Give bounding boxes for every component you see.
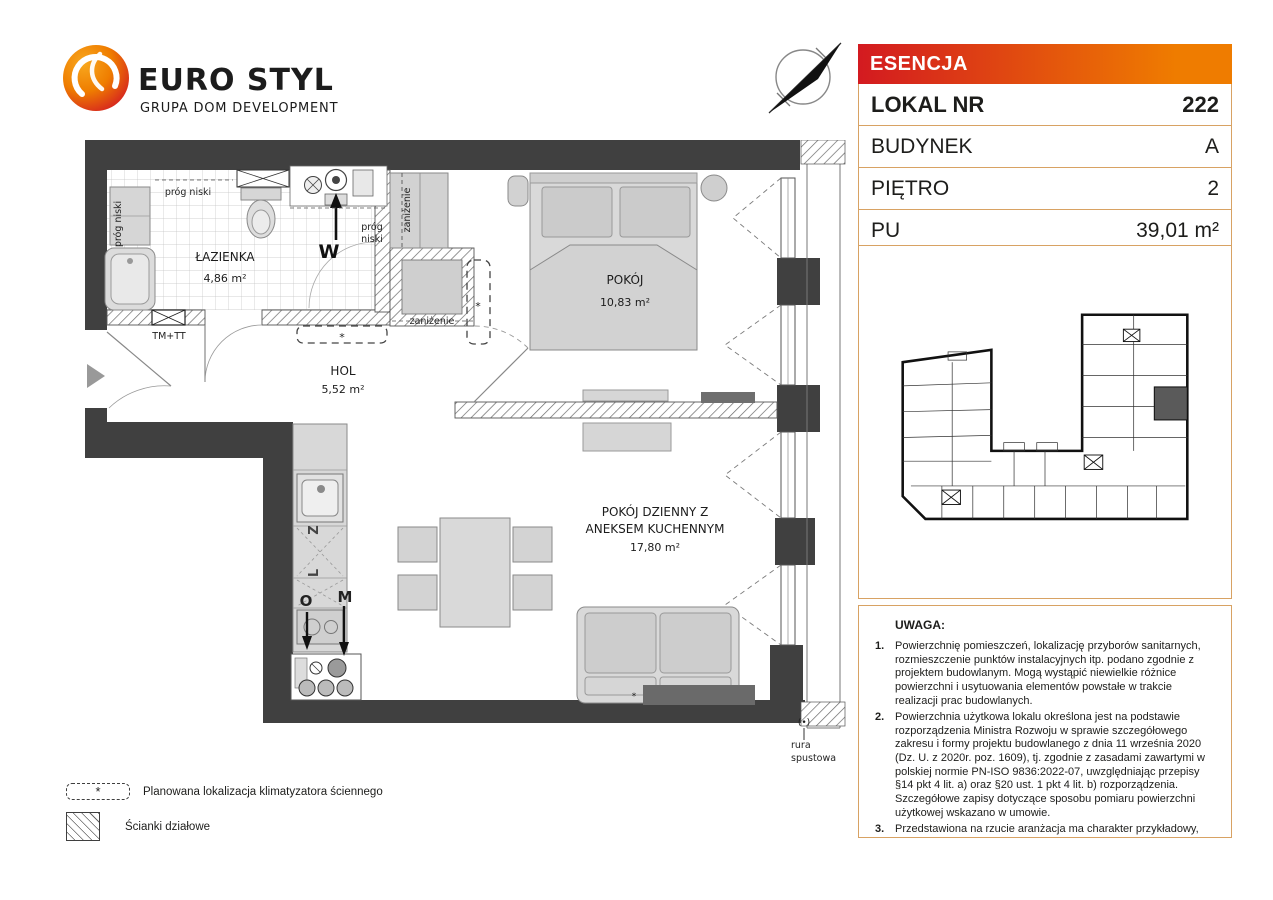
label-rura-2: spustowa [791,753,836,764]
label-oven: O [300,592,313,610]
info-label: PU [871,219,900,243]
legend: * Planowana lokalizacja klimatyzatora śc… [66,783,586,850]
label-niski: niski [361,234,383,245]
info-label: BUDYNEK [871,135,973,159]
room-label-hol: HOL [330,364,355,378]
brand-subtitle: GRUPA DOM DEVELOPMENT [140,101,338,116]
label-prog-niski-top: próg niski [165,187,211,198]
building-key-plan-cell [858,245,1232,599]
floor-plan: ŁAZIENKA 4,86 m² HOL 5,52 m² POKÓJ 10,83… [85,140,847,772]
note-item: 2. Powierzchnia użytkowa lokalu określon… [875,711,1217,820]
wall-vent-box [237,170,289,187]
bedroom-tv [701,392,755,403]
info-label: PIĘTRO [871,177,949,201]
room-label-living-2: ANEKSEM KUCHENNYM [586,522,725,536]
info-row-lokal: LOKAL NR 222 [858,84,1232,126]
tv-asterisk: * [632,692,637,702]
notes-panel: UWAGA: 1. Powierzchnię pomieszczeń, loka… [858,605,1232,838]
legend-label-ac: Planowana lokalizacja klimatyzatora ście… [143,786,383,798]
building-key-plan [880,297,1210,547]
info-value: 222 [1182,92,1219,118]
legend-label-partition: Ścianki działowe [125,821,210,833]
project-name-header: ESENCJA [858,44,1232,84]
dining-table [398,518,552,627]
info-row-budynek: BUDYNEK A [858,126,1232,168]
note-item: 3. Przedstawiona na rzucie aranżacja ma … [875,823,1217,838]
room-label-pokoj: POKÓJ [607,272,644,287]
label-fridge: L [307,569,322,577]
bed [508,173,727,350]
balcony-strip [801,140,845,728]
highlighted-unit [1154,387,1187,420]
note-item: 1. Powierzchnię pomieszczeń, lokalizację… [875,640,1217,708]
room-label-lazienka: ŁAZIENKA [194,250,255,264]
tv-board [643,685,755,705]
brand-name: EURO STYL [138,63,334,98]
partition-hatch-symbol [66,812,100,841]
info-value: 2 [1207,177,1219,201]
label-washer: W [319,241,340,263]
entrance-door [87,332,171,408]
room-area-hol: 5,52 m² [321,383,364,396]
label-rura-1: rura [791,740,811,751]
label-prog-niski-left: próg niski [113,201,124,247]
room-area-living: 17,80 m² [630,541,680,554]
info-value: A [1205,135,1219,159]
ac-symbol: * [66,783,130,800]
living-sideboard [583,423,671,451]
bedside-bench [508,176,528,206]
ac-asterisk-bedroom: * [475,300,481,313]
unit-info-panel: ESENCJA LOKAL NR 222 BUDYNEK A PIĘTRO 2 … [858,44,1232,252]
brand-logo: EURO STYL GRUPA DOM DEVELOPMENT [58,34,368,122]
label-m: M [338,588,353,606]
room-area-pokoj: 10,83 m² [600,296,650,309]
label-zanizenie-horizontal: zaniżenie [410,316,455,327]
info-value: 39,01 m² [1136,219,1219,243]
drain-symbol: (•) [798,718,810,728]
legend-item-ac: * Planowana lokalizacja klimatyzatora śc… [66,783,586,800]
floorplan-page: EURO STYL GRUPA DOM DEVELOPMENT [0,0,1273,900]
bathtub [105,248,155,310]
shaft-niche [402,260,462,314]
info-row-pietro: PIĘTRO 2 [858,168,1232,210]
label-zanizenie-vertical: zaniżenie [402,187,413,232]
kitchen-counter [293,424,347,652]
ac-asterisk-hall: * [339,331,345,344]
bedroom-sideboard [583,390,668,401]
installation-shaft [291,654,361,700]
info-label: LOKAL NR [871,92,984,118]
legend-item-partition: Ścianki działowe [66,812,586,841]
electrical-box [152,310,185,325]
label-tm-tt: TM+TT [151,331,186,342]
bedroom-door [474,326,528,402]
north-arrow-icon [756,28,850,122]
wardrobe [390,173,448,248]
notes-list: 1. Powierzchnię pomieszczeń, lokalizację… [875,640,1217,838]
room-area-lazienka: 4,86 m² [203,272,246,285]
notes-title: UWAGA: [895,618,1217,632]
label-prog: próg [361,222,383,233]
label-dishwasher: Z [307,525,322,534]
eurostyl-logo-icon [63,45,129,111]
room-label-living-1: POKÓJ DZIENNY Z [602,504,709,519]
bedside-stool [701,175,727,201]
